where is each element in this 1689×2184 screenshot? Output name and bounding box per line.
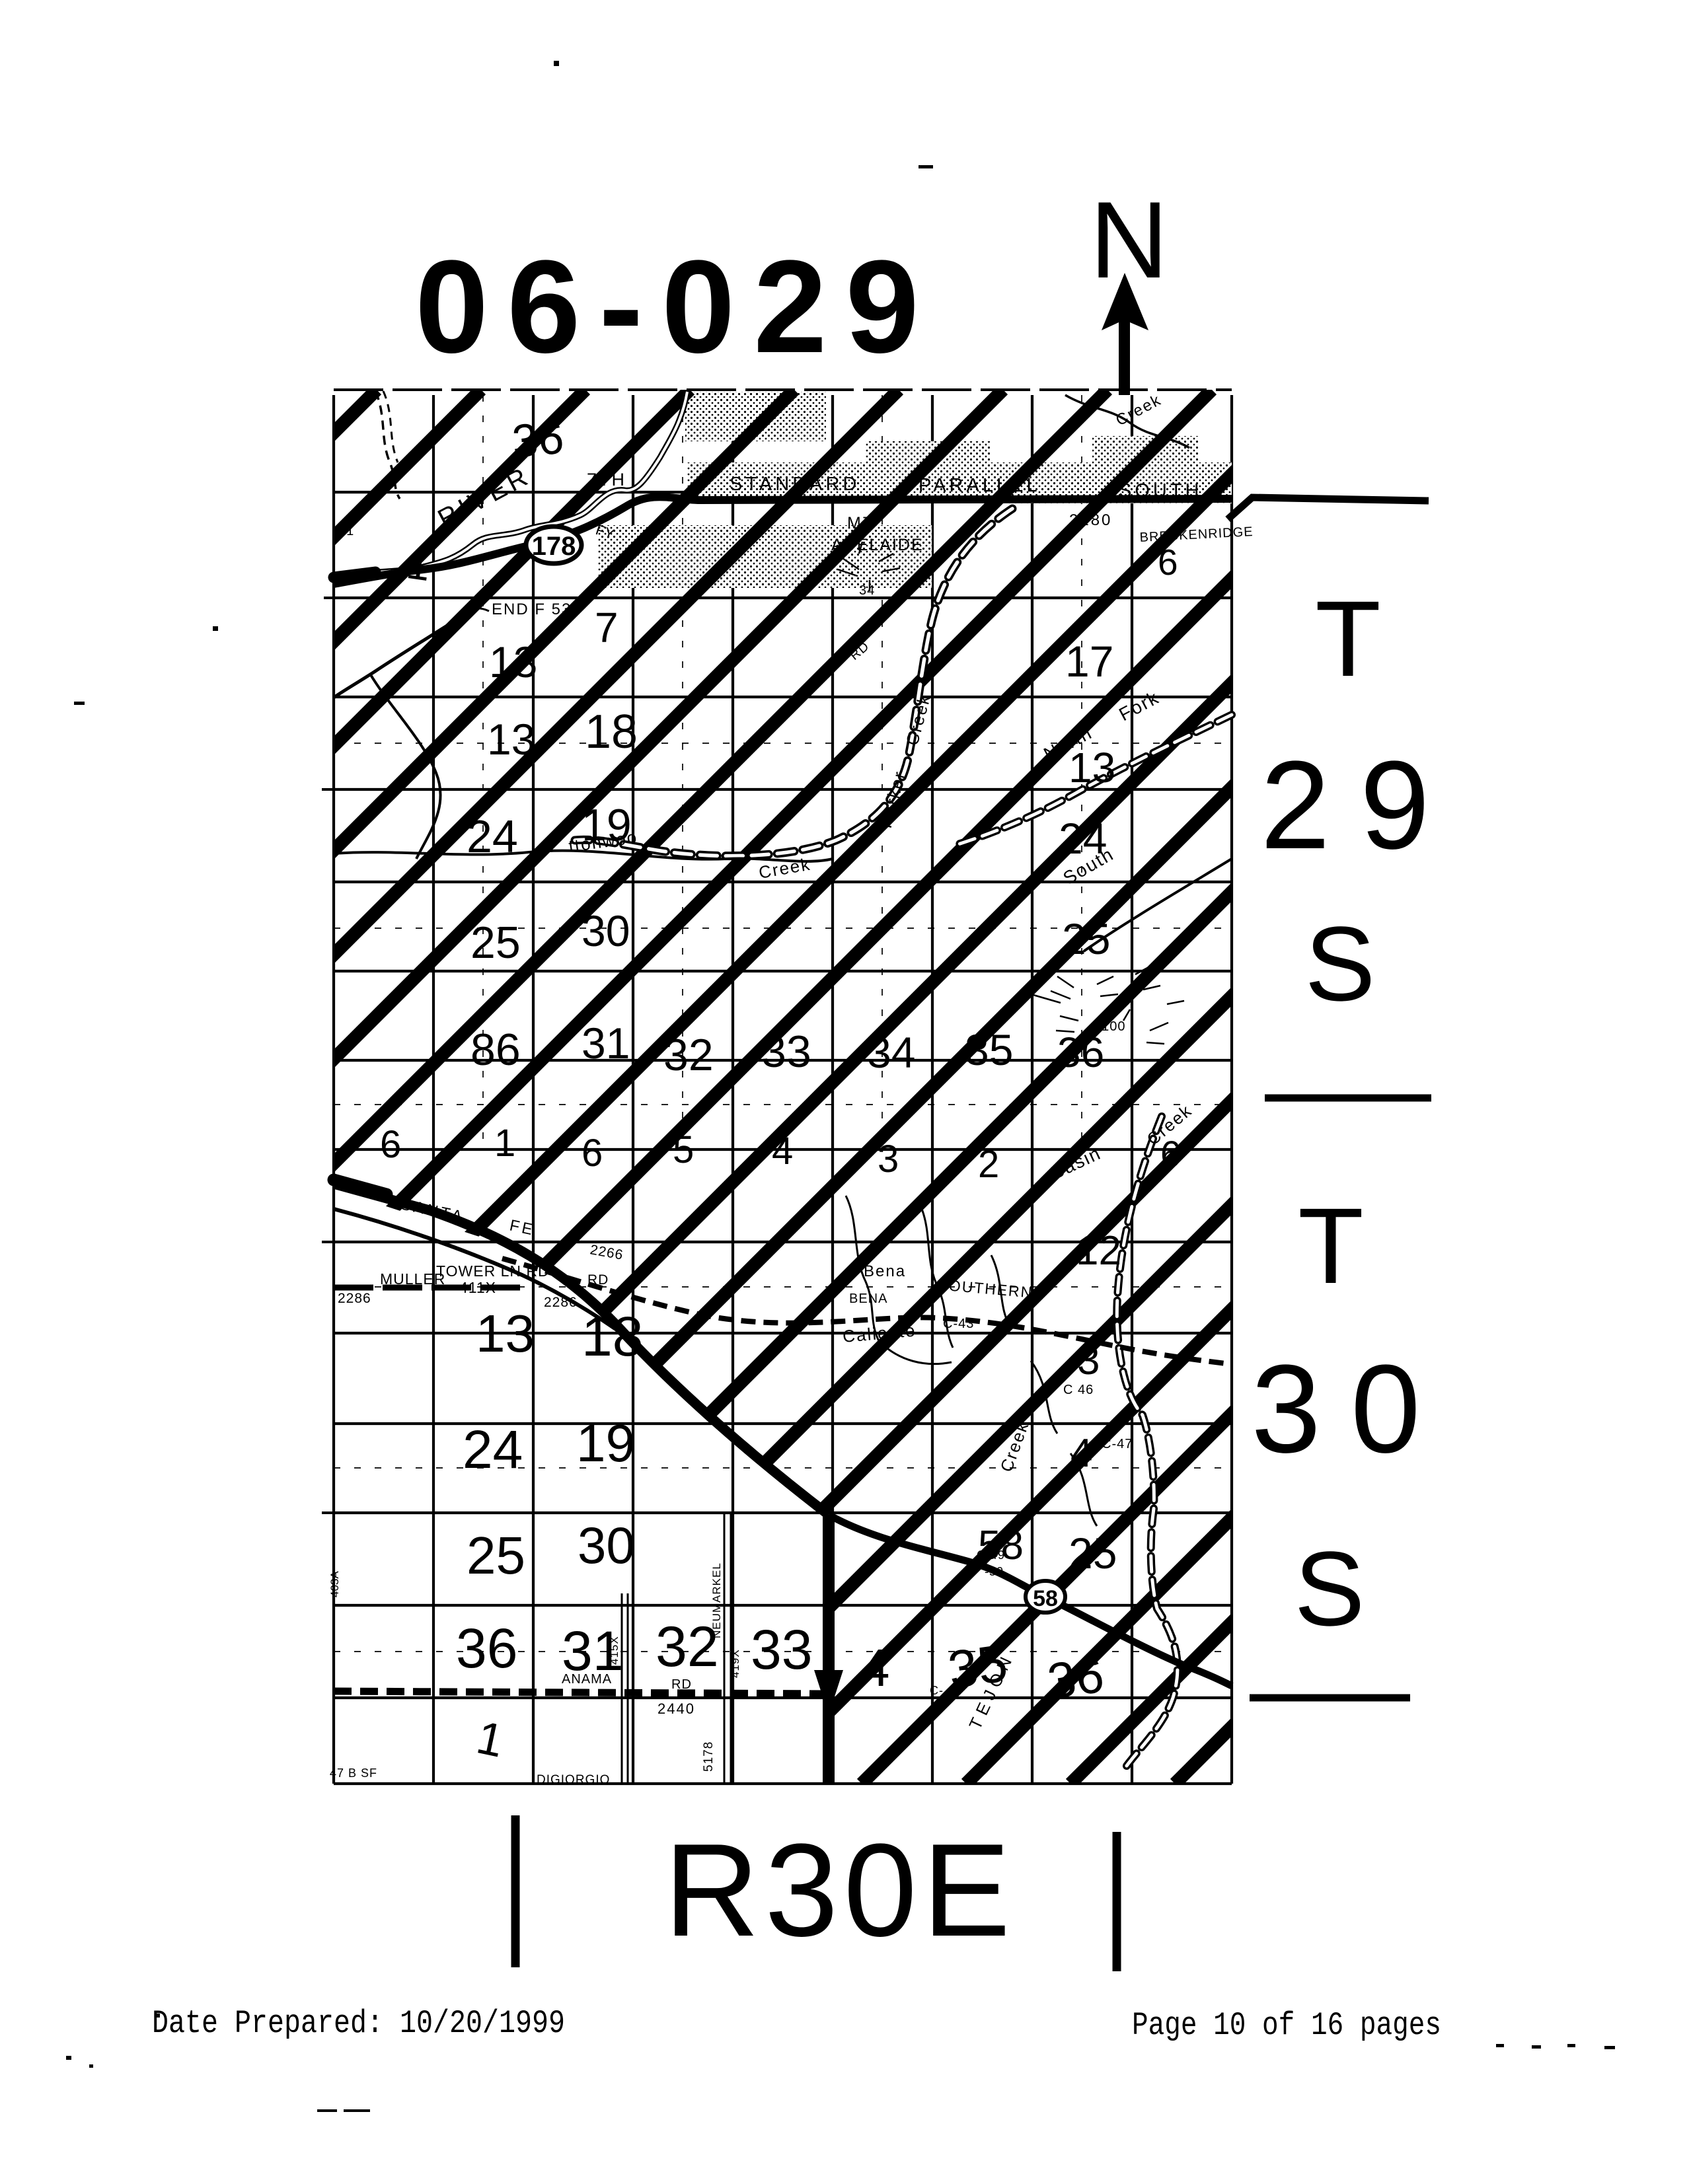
svg-text:2: 2	[978, 1143, 999, 1186]
svg-text:T: T	[1298, 1185, 1364, 1306]
svg-text:2440: 2440	[657, 1700, 695, 1717]
svg-text:4: 4	[1070, 1431, 1092, 1475]
svg-text:178: 178	[532, 532, 576, 561]
svg-text:47 B SF: 47 B SF	[330, 1766, 377, 1780]
svg-text:DIGIORGIO: DIGIORGIO	[537, 1773, 610, 1787]
svg-text:C-47: C-47	[1102, 1437, 1133, 1451]
svg-text:13: 13	[476, 1304, 535, 1363]
svg-text:BENA: BENA	[849, 1292, 887, 1306]
svg-text:33: 33	[751, 1619, 812, 1681]
svg-text:END F 53: END F 53	[492, 601, 572, 618]
svg-text:30: 30	[1251, 1339, 1450, 1479]
svg-text:32: 32	[656, 1615, 719, 1679]
svg-text:58: 58	[1033, 1586, 1058, 1611]
svg-text:7TH: 7TH	[587, 470, 626, 490]
svg-text:T: T	[1315, 578, 1381, 699]
svg-text:29: 29	[1260, 735, 1459, 875]
svg-text:SOUTH: SOUTH	[1119, 480, 1203, 501]
svg-text:RD: RD	[587, 1272, 609, 1288]
svg-text:MT: MT	[847, 514, 875, 532]
svg-text:MULLER: MULLER	[380, 1270, 445, 1288]
svg-text:1: 1	[494, 1122, 515, 1165]
svg-text:403A: 403A	[328, 1571, 341, 1597]
svg-text:6: 6	[1158, 542, 1178, 583]
svg-text:81: 81	[338, 524, 354, 538]
svg-text:6: 6	[582, 1132, 603, 1175]
svg-text:24: 24	[467, 811, 518, 862]
svg-text:25: 25	[467, 1526, 525, 1585]
svg-text:36: 36	[510, 412, 566, 467]
svg-text:415X: 415X	[608, 1636, 620, 1665]
svg-text:31: 31	[582, 1019, 630, 1068]
svg-text:7: 7	[595, 604, 619, 651]
svg-text:34: 34	[867, 1028, 915, 1077]
svg-text:06-029: 06-029	[415, 233, 938, 381]
svg-text:4: 4	[772, 1130, 793, 1173]
svg-text:3: 3	[1077, 1338, 1100, 1383]
svg-text:N: N	[1090, 179, 1168, 301]
svg-text:24: 24	[463, 1420, 523, 1480]
svg-text:30: 30	[582, 906, 630, 955]
svg-text:13: 13	[1069, 744, 1115, 791]
svg-text:411X: 411X	[459, 1279, 496, 1296]
svg-text:35: 35	[965, 1025, 1013, 1074]
svg-text:419X: 419X	[729, 1649, 741, 1678]
svg-text:C-49: C-49	[977, 1548, 1005, 1562]
svg-text:25: 25	[470, 918, 521, 968]
svg-text:36: 36	[1044, 1647, 1107, 1710]
svg-text:ADELAIDE: ADELAIDE	[831, 536, 924, 554]
svg-text:36: 36	[456, 1617, 517, 1679]
svg-text:33: 33	[761, 1027, 811, 1077]
svg-text:S: S	[1305, 904, 1376, 1023]
svg-text:13: 13	[487, 715, 535, 764]
svg-text:86: 86	[470, 1025, 521, 1075]
svg-text:12: 12	[1076, 1228, 1121, 1274]
svg-text:RD: RD	[671, 1677, 692, 1692]
svg-text:ANAMA: ANAMA	[562, 1672, 612, 1687]
svg-text:C-: C-	[930, 1684, 944, 1697]
svg-text:Bena: Bena	[864, 1262, 906, 1280]
svg-text:5: 5	[673, 1128, 694, 1171]
svg-text:Page 10 of 16 pages: Page 10 of 16 pages	[1132, 2007, 1441, 2044]
svg-text:25: 25	[1062, 914, 1110, 963]
svg-text:STANDARD: STANDARD	[730, 474, 860, 495]
svg-text:17: 17	[1065, 637, 1113, 686]
svg-text:18: 18	[582, 1305, 643, 1367]
svg-text:25: 25	[1069, 1529, 1117, 1578]
svg-text:-50: -50	[985, 1565, 1004, 1578]
svg-text:4: 4	[860, 1638, 890, 1697]
svg-text:3: 3	[878, 1138, 899, 1181]
svg-text:19: 19	[576, 1414, 635, 1473]
svg-text:2180: 2180	[1069, 511, 1112, 529]
svg-text:2286: 2286	[338, 1291, 371, 1306]
svg-text:5178: 5178	[702, 1741, 716, 1772]
svg-text:PARALLEL: PARALLEL	[919, 475, 1041, 496]
svg-text:34: 34	[859, 583, 875, 598]
svg-text:13: 13	[489, 637, 537, 686]
svg-text:C-43: C-43	[943, 1317, 974, 1331]
svg-text:36: 36	[1057, 1029, 1104, 1076]
svg-text:30: 30	[578, 1516, 635, 1574]
svg-text:2286: 2286	[544, 1295, 578, 1310]
svg-text:18: 18	[585, 706, 638, 758]
svg-text:S: S	[1295, 1529, 1365, 1648]
svg-text:6: 6	[380, 1123, 401, 1166]
svg-text:NEUMARKEL: NEUMARKEL	[710, 1562, 723, 1638]
svg-text:R30E: R30E	[664, 1817, 1016, 1964]
svg-text:32: 32	[663, 1030, 714, 1080]
svg-text:TOWER LN RD: TOWER LN RD	[436, 1262, 550, 1280]
svg-text:C 46: C 46	[1063, 1383, 1094, 1397]
svg-text:Date Prepared: 10/20/1999: Date Prepared: 10/20/1999	[152, 2005, 565, 2042]
